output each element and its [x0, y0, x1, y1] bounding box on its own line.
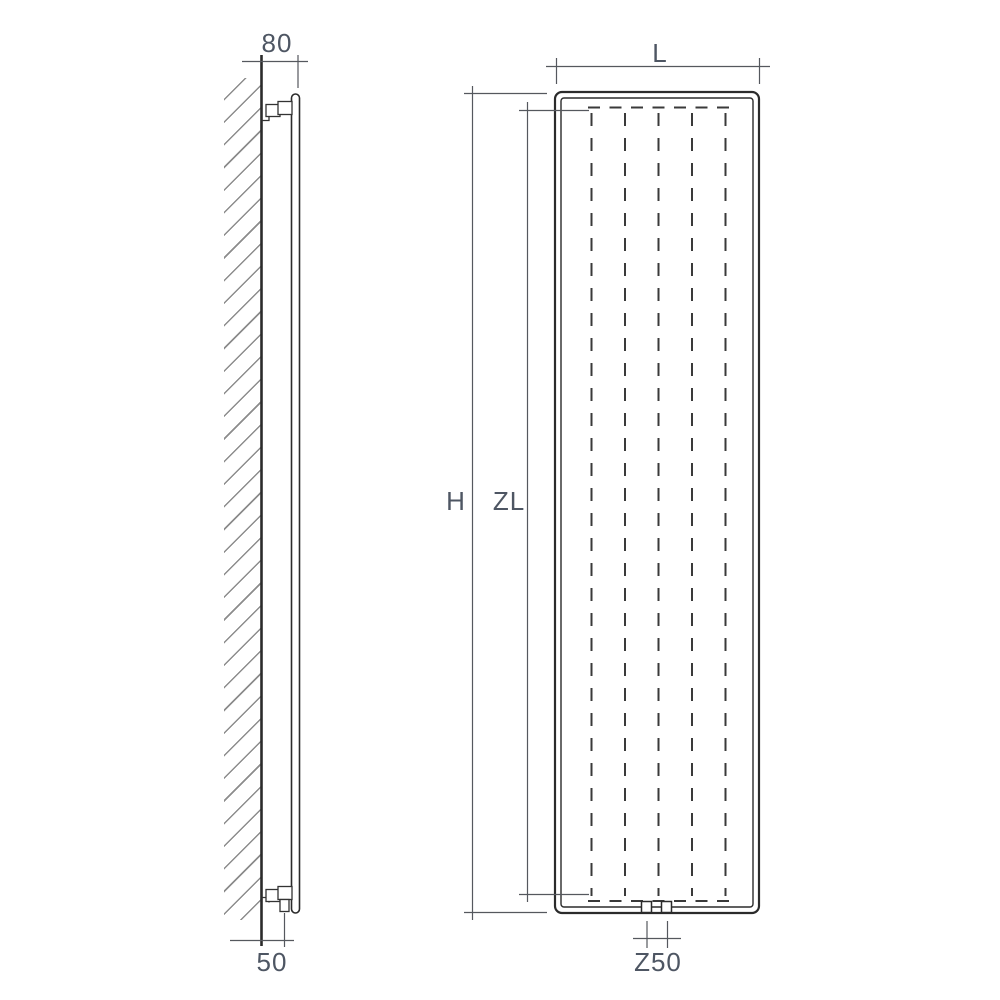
dimension-80-label: 80: [262, 28, 293, 58]
dimension-ZL-label: ZL: [493, 486, 525, 516]
dimension-width: L: [546, 38, 770, 84]
radiator-panel-outer: [555, 92, 759, 913]
top-bracket-arm: [278, 102, 292, 115]
top-bracket: [262, 102, 293, 121]
radiator-panel-profile: [292, 94, 300, 913]
dimension-L-label: L: [652, 38, 667, 68]
bottom-bracket-arm: [278, 887, 292, 900]
drawing-canvas: 80 50: [0, 0, 1000, 1000]
dimension-Z50-label: Z50: [634, 947, 682, 977]
dimension-connection-spacing: Z50: [633, 921, 682, 977]
front-view: L H ZL Z50: [446, 38, 770, 977]
side-view: 80 50: [230, 28, 308, 977]
bottom-bracket: [262, 887, 293, 912]
radiator-technical-drawing: 80 50: [0, 0, 1000, 1000]
dimension-wall-offset-top: 80: [242, 28, 308, 88]
dimension-50-label: 50: [257, 947, 288, 977]
valve-left: [642, 902, 652, 913]
bottom-bracket-connector: [280, 900, 289, 912]
valve-right: [662, 902, 672, 913]
dimension-H-label: H: [446, 486, 466, 516]
